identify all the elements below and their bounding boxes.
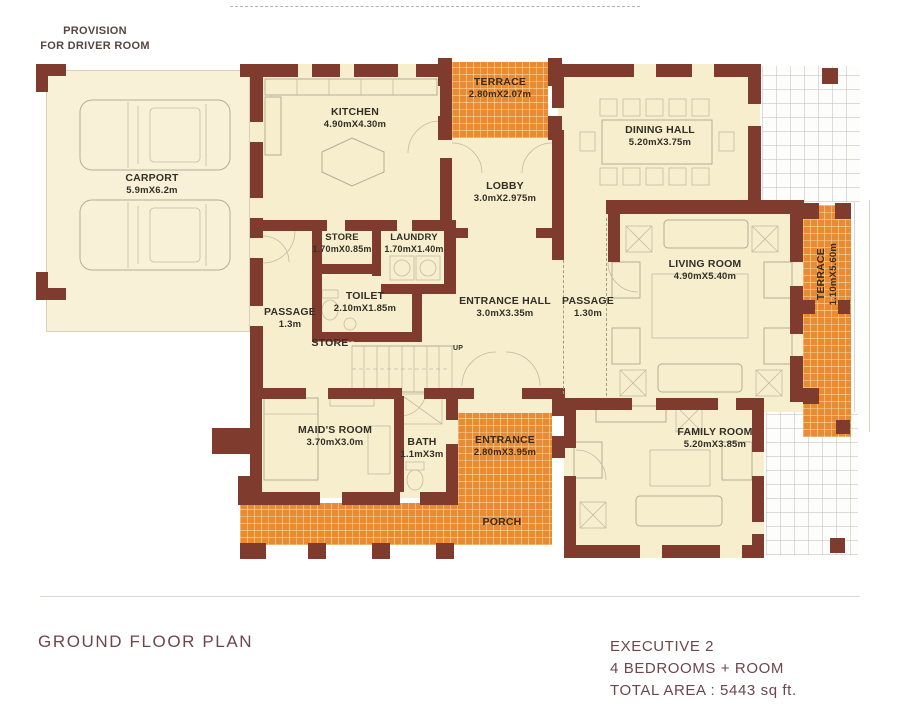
wall-segment bbox=[345, 220, 397, 231]
wall-segment bbox=[36, 64, 48, 92]
room-dims: 1.70mX0.85m bbox=[305, 244, 379, 255]
wall-segment bbox=[240, 64, 298, 77]
room-name: MAID'S ROOM bbox=[298, 424, 372, 436]
room-label-dining-hall: DINING HALL 5.20mX3.75m bbox=[590, 124, 730, 148]
wall-segment bbox=[838, 300, 850, 314]
bedrooms-line: 4 BEDROOMS + ROOM bbox=[610, 658, 890, 680]
wall-segment bbox=[790, 214, 803, 262]
room-label-maids-room: MAID'S ROOM 3.70mX3.0m bbox=[275, 424, 395, 448]
wall-segment bbox=[552, 64, 564, 108]
room-label-living-room: LIVING ROOM 4.90mX5.40m bbox=[640, 258, 770, 282]
room-name: DINING HALL bbox=[625, 124, 695, 136]
wall-segment bbox=[240, 543, 266, 559]
room-dims: 1.3m bbox=[252, 319, 328, 331]
wall-segment bbox=[250, 258, 263, 306]
room-label-terrace-right: TERRACE 1.10mX5.60m bbox=[815, 222, 839, 326]
wall-segment bbox=[830, 538, 845, 553]
room-label-porch: PORCH bbox=[470, 516, 534, 529]
room-dims: 1.70mX1.40m bbox=[378, 244, 450, 255]
wall-segment bbox=[328, 388, 402, 399]
wall-segment bbox=[608, 214, 620, 262]
car-icon bbox=[80, 100, 230, 170]
room-dims: 5.20mX3.75m bbox=[590, 137, 730, 149]
room-label-bath: BATH 1.1mX3m bbox=[396, 436, 448, 460]
wall-segment bbox=[662, 545, 720, 558]
wall-segment bbox=[440, 77, 452, 119]
wall-segment bbox=[822, 68, 838, 84]
room-name: TOILET bbox=[346, 290, 384, 302]
total-area-line: TOTAL AREA : 5443 sq ft. bbox=[610, 680, 890, 702]
wall-segment bbox=[552, 205, 564, 260]
room-name: LAUNDRY bbox=[390, 232, 438, 243]
room-name: STORE bbox=[325, 232, 359, 243]
floor-plan: PROVISION FOR DRIVER ROOM CARPORT 5.9mX6… bbox=[0, 0, 900, 720]
room-name: PORCH bbox=[483, 516, 522, 528]
room-label-lobby: LOBBY 3.0mX2.975m bbox=[445, 180, 565, 204]
wall-segment bbox=[354, 64, 398, 77]
wall-segment bbox=[790, 356, 803, 402]
wall-segment bbox=[522, 388, 554, 399]
wall-segment bbox=[836, 420, 850, 434]
provision-line1: PROVISION bbox=[63, 25, 127, 37]
room-label-family-room: FAMILY ROOM 5.20mX3.85m bbox=[650, 426, 780, 450]
room-label-entrance: ENTRANCE 2.80mX3.95m bbox=[455, 434, 555, 458]
kitchen-counter-icon bbox=[265, 79, 437, 186]
room-dims: 1.1mX3m bbox=[396, 449, 448, 461]
wall-segment bbox=[803, 203, 819, 219]
room-label-store-under-stairs: STORE bbox=[300, 337, 360, 350]
room-name: ENTRANCE bbox=[475, 434, 535, 446]
room-label-kitchen: KITCHEN 4.90mX4.30m bbox=[295, 106, 415, 130]
room-name: LIVING ROOM bbox=[669, 258, 742, 270]
wall-segment bbox=[372, 543, 390, 559]
room-label-passage-right: PASSAGE 1.30m bbox=[550, 295, 626, 319]
room-dims: 4.90mX4.30m bbox=[295, 119, 415, 131]
up-text: UP bbox=[453, 345, 463, 352]
room-dims: 3.0mX2.975m bbox=[445, 193, 565, 205]
room-label-laundry: LAUNDRY 1.70mX1.40m bbox=[378, 232, 450, 255]
car-icon bbox=[80, 200, 230, 270]
wall-segment bbox=[803, 300, 815, 314]
room-name: PASSAGE bbox=[264, 306, 316, 318]
model-name: EXECUTIVE 2 bbox=[610, 636, 890, 658]
laundry-machines-icon bbox=[390, 256, 440, 280]
wall-segment bbox=[250, 142, 263, 198]
room-name: ENTRANCE HALL bbox=[459, 295, 551, 307]
room-dims: 1.30m bbox=[550, 308, 626, 320]
wall-segment bbox=[606, 200, 804, 214]
wall-segment bbox=[803, 388, 819, 404]
wall-segment bbox=[748, 64, 761, 104]
room-name: TERRACE bbox=[474, 76, 526, 88]
wall-segment bbox=[250, 218, 263, 238]
wall-segment bbox=[564, 64, 634, 77]
wall-segment bbox=[342, 492, 400, 505]
plan-summary: EXECUTIVE 2 4 BEDROOMS + ROOM TOTAL AREA… bbox=[610, 636, 890, 701]
wall-segment bbox=[412, 220, 444, 231]
provision-note: PROVISION FOR DRIVER ROOM bbox=[15, 24, 175, 54]
room-dims: 2.10mX1.85m bbox=[320, 303, 410, 315]
wall-segment bbox=[452, 228, 468, 238]
wall-segment bbox=[835, 203, 851, 219]
passage-dashed-line bbox=[563, 260, 564, 394]
room-name: CARPORT bbox=[125, 172, 178, 184]
room-label-store: STORE 1.70mX0.85m bbox=[305, 232, 379, 255]
room-name: FAMILY ROOM bbox=[677, 426, 752, 438]
room-name: KITCHEN bbox=[331, 106, 379, 118]
wall-segment bbox=[438, 116, 452, 140]
room-name: BATH bbox=[407, 436, 436, 448]
wall-segment bbox=[250, 326, 263, 392]
room-dims: 1.10mX5.60m bbox=[828, 222, 840, 326]
room-label-toilet: TOILET 2.10mX1.85m bbox=[320, 290, 410, 314]
wall-segment bbox=[212, 428, 252, 454]
room-name: TERRACE bbox=[815, 248, 827, 300]
room-label-terrace-top: TERRACE 2.80mX2.07m bbox=[452, 76, 548, 100]
family-furniture-icon bbox=[574, 406, 752, 528]
wall-segment bbox=[312, 64, 340, 77]
room-dims: 5.20mX3.85m bbox=[650, 439, 780, 451]
wall-segment bbox=[714, 64, 748, 77]
room-label-carport: CARPORT 5.9mX6.2m bbox=[92, 172, 212, 196]
living-furniture-icon bbox=[612, 220, 792, 396]
wall-segment bbox=[446, 388, 474, 399]
room-dims: 3.70mX3.0m bbox=[275, 437, 395, 449]
wall-segment bbox=[564, 398, 632, 410]
wall-segment bbox=[656, 64, 692, 77]
stairs-up-label: UP bbox=[448, 345, 468, 354]
room-dims: 2.80mX2.07m bbox=[452, 89, 548, 101]
room-name: PASSAGE bbox=[562, 295, 614, 307]
room-dims: 4.90mX5.40m bbox=[640, 271, 770, 283]
wall-segment bbox=[36, 272, 48, 300]
wall-segment bbox=[436, 543, 454, 559]
wall-segment bbox=[656, 398, 718, 410]
stairs-icon bbox=[352, 346, 455, 392]
wall-segment bbox=[790, 286, 803, 334]
wall-segment bbox=[748, 126, 761, 202]
wall-segment bbox=[752, 476, 764, 522]
room-name: LOBBY bbox=[486, 180, 524, 192]
room-dims: 2.80mX3.95m bbox=[455, 447, 555, 459]
room-name: STORE bbox=[312, 337, 349, 349]
wall-segment bbox=[250, 64, 263, 122]
wall-segment bbox=[308, 543, 326, 559]
room-label-passage-left: PASSAGE 1.3m bbox=[252, 306, 328, 330]
plan-title: GROUND FLOOR PLAN bbox=[38, 632, 253, 652]
wall-segment bbox=[742, 545, 764, 558]
wall-segment bbox=[564, 545, 640, 558]
wall-segment bbox=[424, 388, 446, 399]
room-dims: 5.9mX6.2m bbox=[92, 185, 212, 197]
provision-line2: FOR DRIVER ROOM bbox=[40, 40, 150, 52]
wall-segment bbox=[536, 228, 552, 238]
wall-segment bbox=[238, 492, 320, 505]
